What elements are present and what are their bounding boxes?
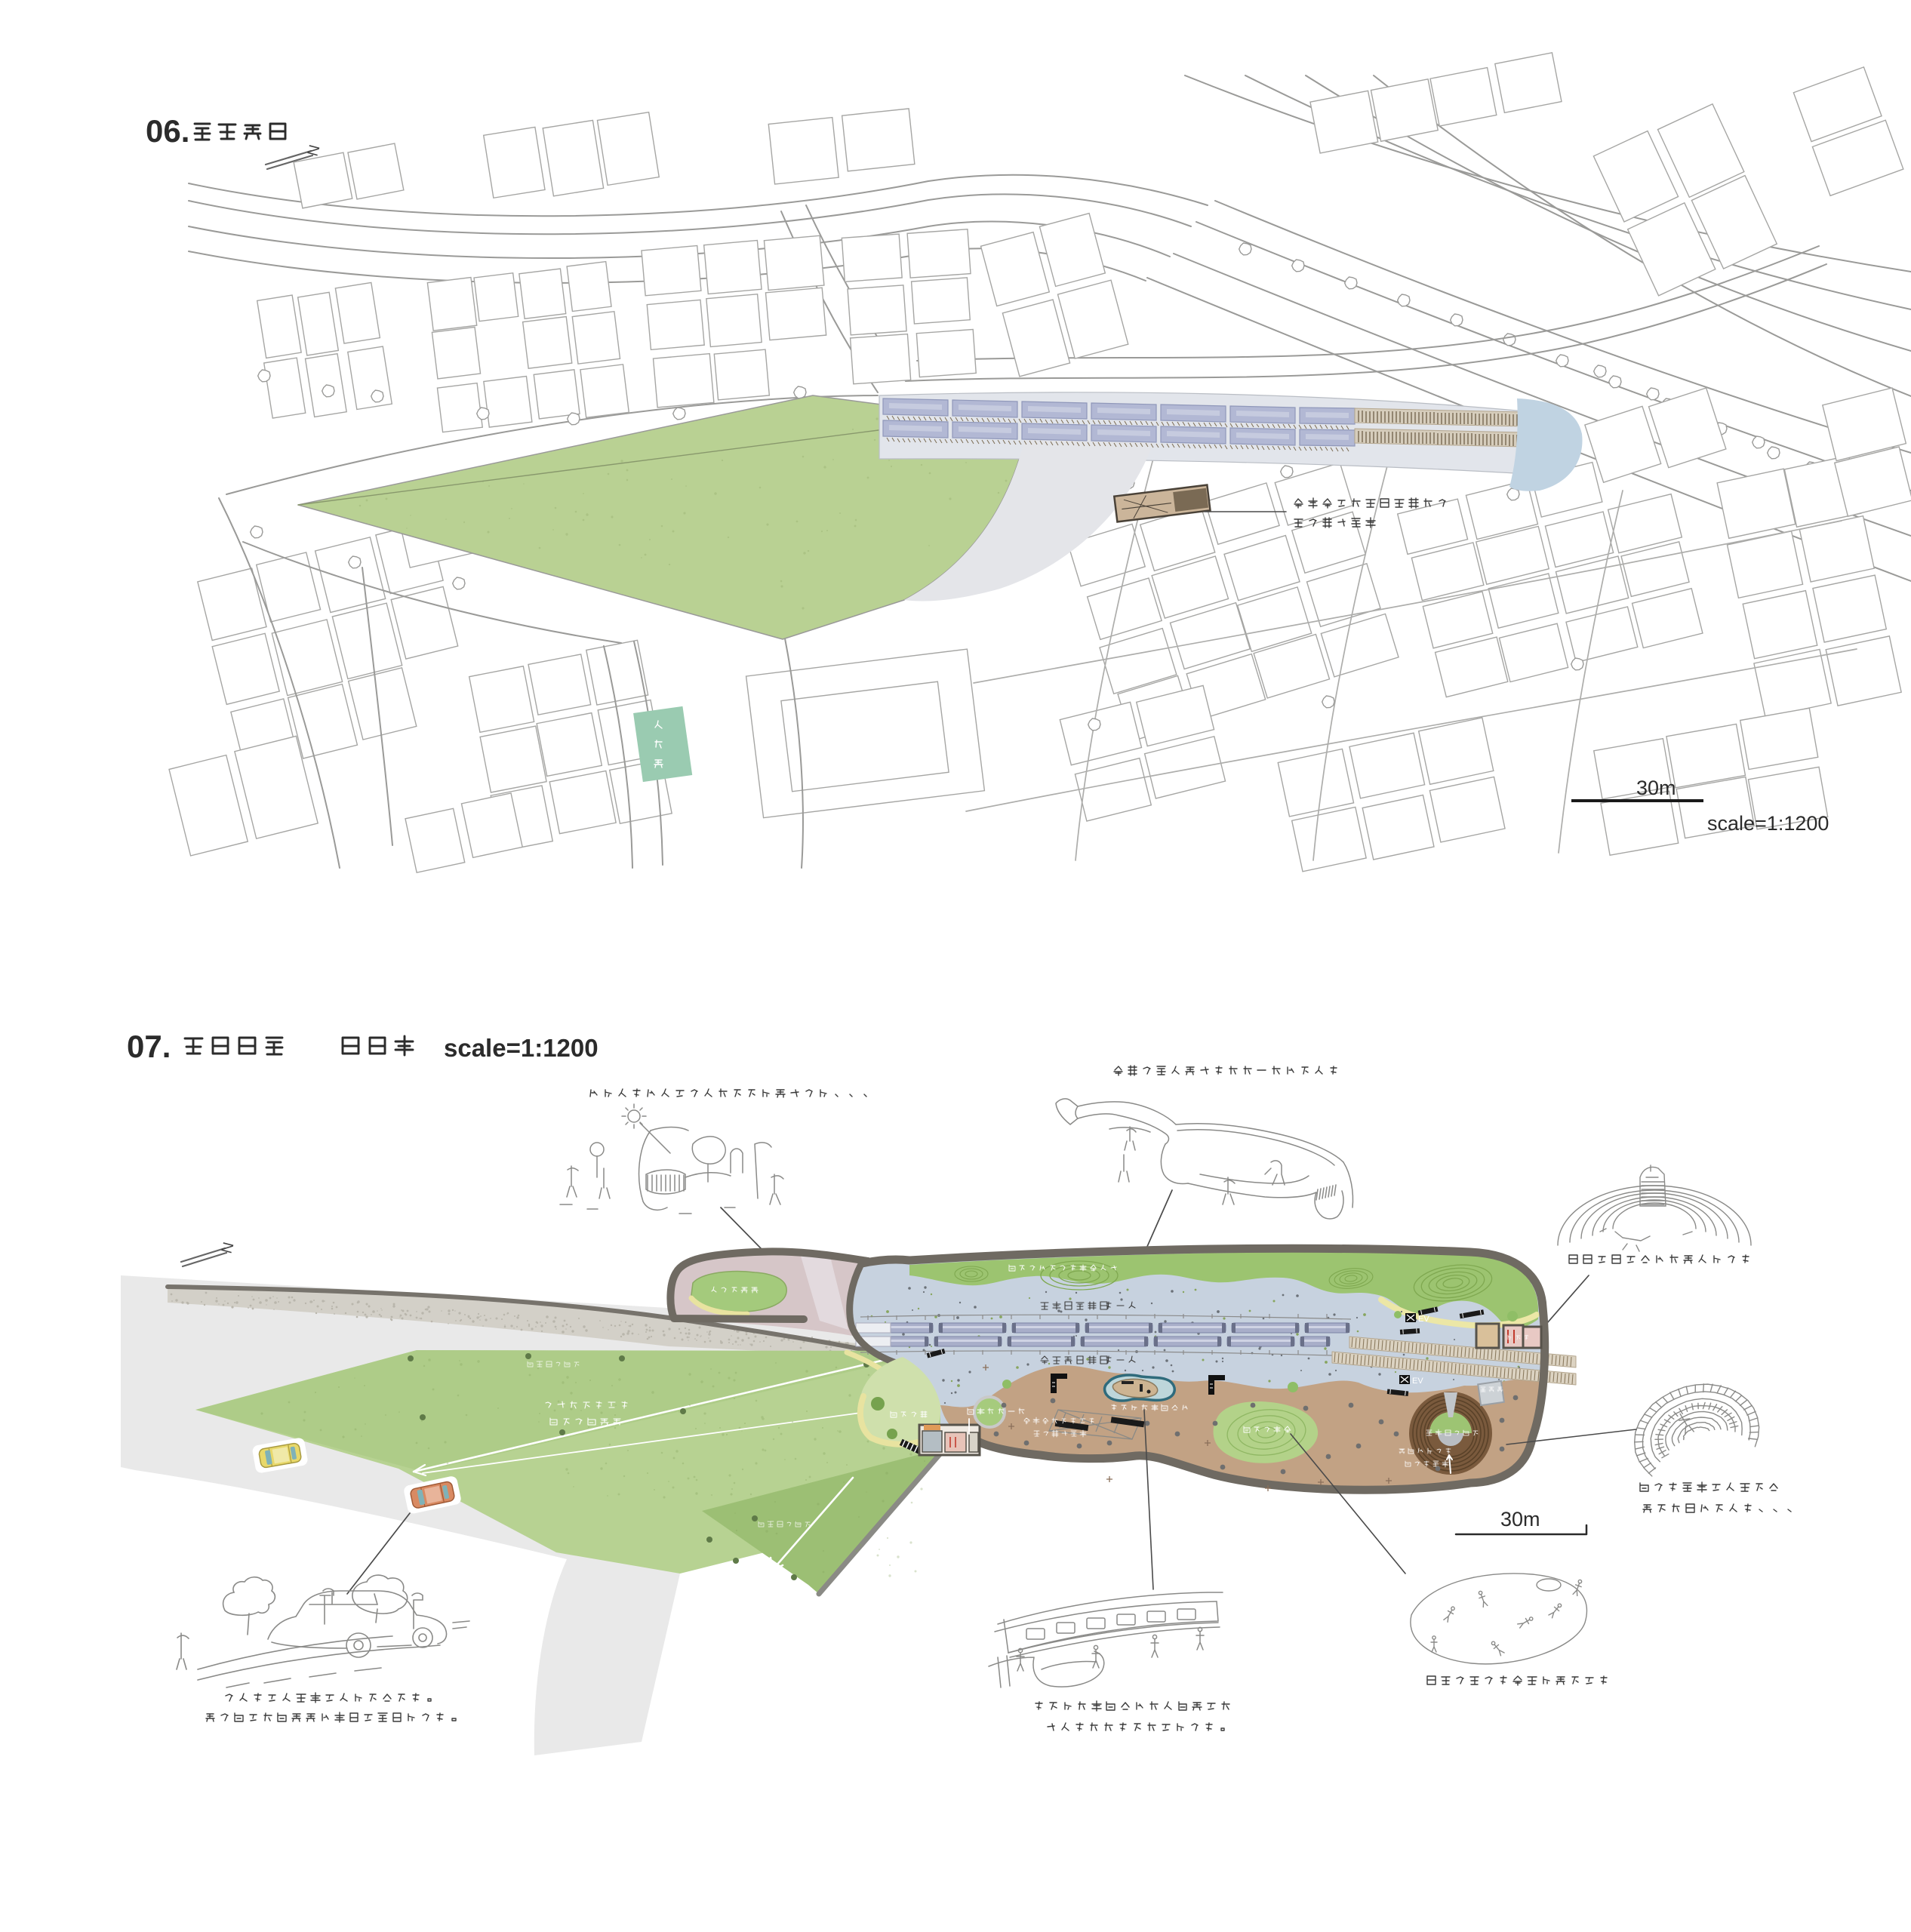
svg-text:06.: 06.: [146, 113, 189, 149]
svg-text:EV: EV: [1418, 1315, 1429, 1324]
svg-text:30m: 30m: [1500, 1508, 1540, 1531]
svg-text:scale=1:1200: scale=1:1200: [444, 1034, 599, 1062]
svg-text:scale=1:1200: scale=1:1200: [1707, 812, 1829, 835]
svg-text:30m: 30m: [1636, 777, 1676, 799]
svg-text:EV: EV: [1412, 1377, 1423, 1386]
svg-text:07.: 07.: [127, 1029, 171, 1064]
